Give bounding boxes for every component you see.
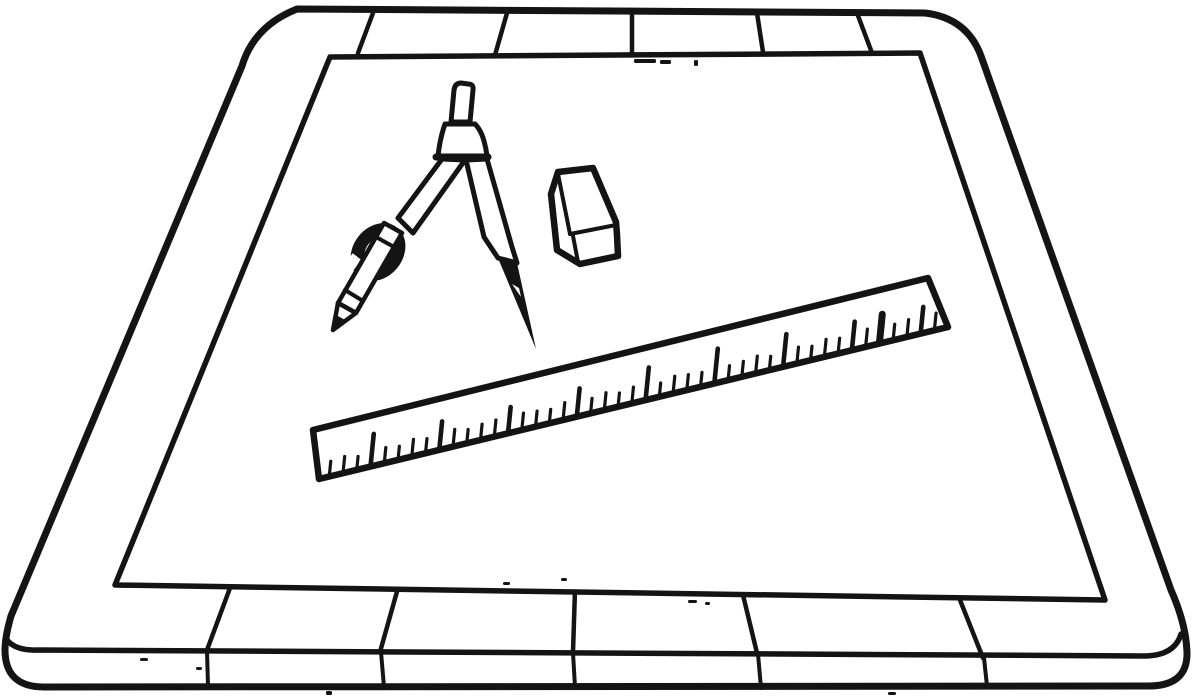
ruler-tick	[797, 347, 798, 361]
plank-divider	[573, 653, 575, 687]
ruler-tick	[715, 349, 718, 381]
ruler-tick	[453, 429, 454, 444]
ruler-tick	[660, 383, 661, 394]
ink-speck	[561, 578, 567, 581]
ruler-tick	[508, 407, 510, 431]
ruler-tick	[550, 409, 551, 420]
ink-speck	[688, 600, 697, 603]
ruler-tick	[495, 420, 496, 434]
ink-speck	[694, 60, 698, 66]
ruler-tick	[825, 339, 826, 354]
ruler-tick	[921, 307, 923, 331]
ruler-tick	[384, 447, 385, 460]
ink-speck	[140, 658, 148, 661]
ruler-tick	[742, 361, 743, 374]
ruler-tick	[536, 411, 537, 424]
ruler-tick	[605, 393, 606, 408]
ruler-tick	[632, 387, 633, 401]
ink-speck	[660, 60, 671, 64]
ruler-tick	[838, 338, 839, 350]
ruler-tick	[371, 434, 374, 464]
ruler-tick	[522, 413, 523, 427]
ruler-tick	[728, 366, 729, 378]
ruler-tick	[935, 313, 936, 327]
ruler-tick	[783, 334, 786, 364]
ruler-tick	[852, 322, 855, 348]
ruler-tick	[880, 314, 883, 340]
ruler-tick	[563, 403, 564, 418]
ruler-tick	[618, 393, 619, 404]
ink-speck	[705, 602, 710, 605]
ruler-tick	[440, 421, 443, 447]
ruler-tick	[467, 430, 468, 441]
ruler-tick	[646, 367, 649, 397]
ruler-tick	[893, 324, 894, 337]
ruler-tick	[577, 388, 580, 414]
ruler-tick	[398, 446, 399, 457]
drafting-board-scene: Black-and-white line-art illustration of…	[0, 0, 1200, 696]
ruler-tick	[907, 320, 908, 334]
ruler-tick	[673, 376, 674, 391]
plank-divider	[207, 651, 208, 686]
drawing-board: Drawing board with plank frame	[5, 9, 1187, 688]
ruler-tick	[701, 372, 702, 384]
ruler-tick	[357, 457, 358, 468]
ruler-tick	[329, 461, 330, 474]
line-art-illustration: Black-and-white line-art illustration of…	[0, 0, 1200, 696]
ink-speck	[326, 691, 332, 695]
compass-hub	[438, 124, 487, 156]
ruler-tick	[426, 439, 427, 451]
plank-divider	[573, 590, 575, 652]
ruler-tick	[756, 356, 757, 371]
ruler-tick	[412, 439, 413, 454]
ruler-tick	[770, 356, 771, 367]
ink-speck	[503, 582, 510, 585]
ruler-tick	[866, 329, 867, 344]
ruler-tick	[687, 375, 688, 388]
ink-speck	[196, 667, 202, 670]
compass-handle	[451, 83, 473, 122]
ink-speck	[634, 59, 656, 63]
ruler-tick	[591, 398, 592, 410]
ink-speck	[888, 692, 896, 695]
ruler-tick	[343, 456, 344, 470]
ruler-tick	[811, 346, 812, 357]
ruler-tick	[481, 424, 482, 437]
